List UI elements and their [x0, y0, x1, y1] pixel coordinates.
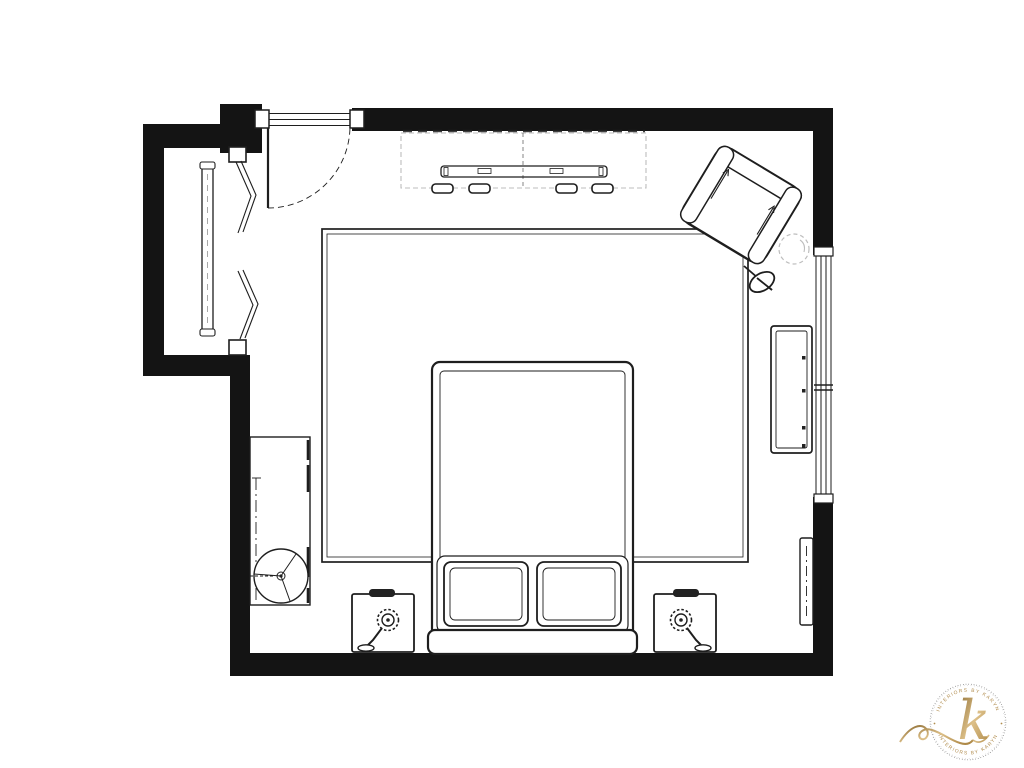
- headboard: [428, 630, 637, 654]
- window-bench: [771, 326, 812, 453]
- wall-left-outer: [143, 124, 164, 376]
- armchair: [678, 143, 805, 266]
- wall-right-top: [813, 108, 833, 255]
- dresser-shelf: [441, 166, 607, 177]
- closet-jamb-bottom: [229, 340, 246, 355]
- closet-jamb-top: [229, 147, 246, 162]
- door-swing-arc: [268, 126, 350, 208]
- window-right: [814, 247, 834, 503]
- dresser: [401, 131, 646, 193]
- wall-top-main: [352, 108, 833, 131]
- leaning-mirror: [800, 538, 813, 625]
- logo-dot-right: [1001, 723, 1003, 725]
- floor-lamp: [744, 266, 778, 296]
- wall-right-bottom: [813, 497, 833, 676]
- nightstand-left: [352, 589, 414, 652]
- bed: [428, 362, 637, 654]
- nightstand-left-handle: [369, 589, 395, 597]
- pillow-left: [444, 562, 528, 626]
- door-jamb-right: [350, 110, 364, 128]
- dresser-outline: [401, 133, 646, 188]
- entry-door: [255, 110, 364, 208]
- floor-plan: [0, 0, 1024, 768]
- brand-logo: INTERIORS BY KARYN INTERIORS BY KARYN k: [893, 676, 1024, 768]
- nightstand-right-handle: [673, 589, 699, 597]
- bifold-door-top: [236, 161, 256, 233]
- door-jamb-left: [255, 110, 269, 128]
- wall-left-main: [230, 355, 250, 676]
- wall-bottom: [230, 653, 833, 676]
- closet: [200, 147, 258, 355]
- nightstand-right: [654, 589, 716, 652]
- bifold-door-bottom: [238, 270, 258, 339]
- logo-monogram: k: [958, 689, 991, 752]
- side-table: [779, 234, 809, 264]
- pillow-right: [537, 562, 621, 626]
- logo-dot-left: [934, 723, 936, 725]
